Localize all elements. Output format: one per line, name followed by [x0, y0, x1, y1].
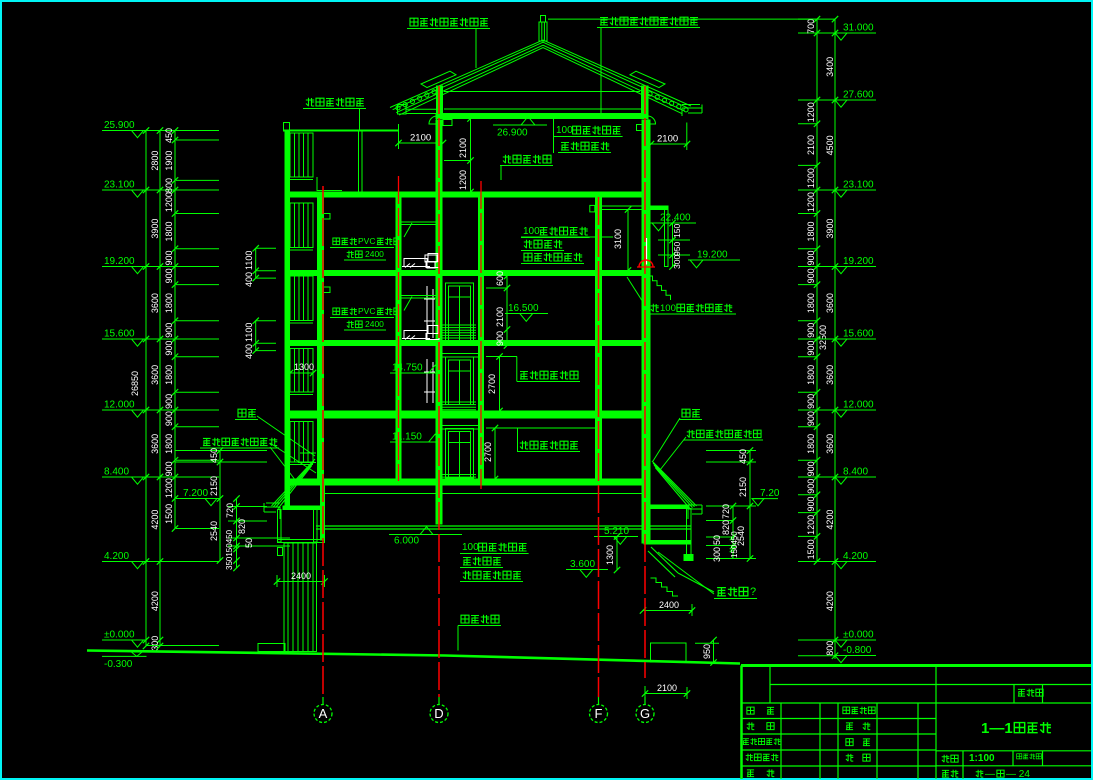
svg-text:100: 100 [556, 125, 573, 136]
svg-text:2150: 2150 [738, 477, 748, 497]
svg-text:900: 900 [806, 461, 816, 476]
svg-text:900: 900 [164, 394, 174, 409]
svg-text:1500: 1500 [164, 504, 174, 524]
svg-text:D: D [434, 706, 443, 721]
svg-text:4200: 4200 [825, 510, 835, 530]
svg-text:3.600: 3.600 [570, 559, 595, 570]
svg-text:±0.000: ±0.000 [843, 630, 874, 641]
svg-text:900: 900 [806, 411, 816, 426]
svg-text:1800: 1800 [164, 222, 174, 242]
svg-text:800: 800 [825, 641, 835, 656]
svg-text:7.200: 7.200 [183, 488, 208, 499]
svg-text:16.500: 16.500 [508, 303, 539, 314]
svg-text:2100: 2100 [657, 683, 677, 693]
svg-text:12.000: 12.000 [843, 400, 874, 411]
svg-text:3900: 3900 [825, 219, 835, 239]
svg-text:1200: 1200 [164, 478, 174, 498]
svg-text:3600: 3600 [150, 365, 160, 385]
svg-text:2700: 2700 [483, 442, 493, 462]
svg-text:1800: 1800 [164, 365, 174, 385]
svg-text:1200: 1200 [806, 102, 816, 122]
svg-text:-0.300: -0.300 [104, 659, 133, 670]
svg-text:31.000: 31.000 [843, 23, 874, 34]
svg-text:720: 720 [225, 503, 235, 518]
svg-text:1800: 1800 [806, 222, 816, 242]
svg-text:1200: 1200 [164, 192, 174, 212]
svg-text:900: 900 [806, 394, 816, 409]
svg-text:1800: 1800 [806, 434, 816, 454]
svg-text:900: 900 [495, 331, 505, 346]
svg-text:450: 450 [164, 128, 174, 143]
svg-text:900: 900 [164, 461, 174, 476]
svg-text:7.20: 7.20 [760, 488, 780, 499]
svg-text:1900: 1900 [164, 151, 174, 171]
svg-text:8.400: 8.400 [104, 467, 129, 478]
svg-text:27.600: 27.600 [843, 90, 874, 101]
svg-text:50: 50 [244, 538, 254, 548]
svg-text:PVC: PVC [358, 236, 375, 246]
svg-text:26850: 26850 [130, 371, 140, 396]
svg-text:23.100: 23.100 [843, 180, 874, 191]
svg-text:— 24: — 24 [1006, 769, 1030, 780]
svg-text:3900: 3900 [150, 219, 160, 239]
svg-text:300: 300 [712, 547, 722, 562]
svg-text:3600: 3600 [825, 434, 835, 454]
svg-text:?: ? [750, 586, 756, 598]
svg-text:1100: 1100 [244, 323, 254, 342]
svg-text:4200: 4200 [150, 510, 160, 530]
svg-text:720: 720 [721, 504, 731, 519]
svg-text:1200: 1200 [458, 170, 468, 190]
svg-text:300: 300 [150, 636, 160, 651]
svg-text:1500: 1500 [806, 539, 816, 559]
svg-text:1300: 1300 [605, 545, 615, 565]
svg-text:50: 50 [712, 535, 722, 545]
svg-text:±0.000: ±0.000 [104, 630, 135, 641]
svg-text:4200: 4200 [150, 591, 160, 611]
svg-text:1300: 1300 [294, 362, 314, 372]
svg-text:G: G [640, 706, 650, 721]
svg-text:300: 300 [672, 255, 682, 269]
svg-text:100: 100 [462, 542, 479, 553]
svg-text:15.600: 15.600 [104, 329, 135, 340]
svg-text:4500: 4500 [825, 135, 835, 155]
svg-text:100: 100 [523, 226, 540, 237]
svg-text:2100: 2100 [806, 135, 816, 155]
svg-text:400: 400 [244, 272, 254, 287]
svg-text:900: 900 [806, 268, 816, 283]
svg-text:2400: 2400 [659, 600, 679, 610]
svg-text:900: 900 [806, 323, 816, 338]
svg-text:3400: 3400 [825, 57, 835, 77]
svg-text:900: 900 [806, 341, 816, 356]
svg-text:2150: 2150 [209, 476, 219, 496]
svg-text:8.400: 8.400 [843, 467, 868, 478]
svg-text:950: 950 [672, 242, 682, 256]
svg-text:4200: 4200 [825, 591, 835, 611]
svg-text:150450: 150450 [730, 531, 739, 558]
svg-text:100: 100 [660, 303, 676, 314]
svg-text:400: 400 [244, 344, 254, 359]
svg-text:PVC: PVC [358, 306, 375, 316]
svg-text:1800: 1800 [806, 365, 816, 385]
svg-text:700: 700 [806, 19, 816, 34]
svg-text:11.150: 11.150 [392, 432, 422, 443]
svg-text:6.000: 6.000 [394, 536, 419, 547]
svg-text:3100: 3100 [613, 229, 623, 249]
svg-text:2400: 2400 [291, 571, 311, 581]
svg-text:F: F [595, 706, 603, 721]
svg-text:900: 900 [806, 250, 816, 265]
svg-text:900: 900 [164, 323, 174, 338]
svg-text:1200: 1200 [806, 168, 816, 188]
svg-text:2400: 2400 [365, 319, 384, 329]
svg-text:1—1: 1—1 [981, 720, 1013, 737]
svg-text:2540: 2540 [209, 521, 219, 541]
svg-text:22.400: 22.400 [660, 213, 691, 224]
svg-text:26.900: 26.900 [497, 128, 528, 139]
svg-text:1:100: 1:100 [969, 753, 995, 764]
svg-text:25.900: 25.900 [104, 120, 135, 131]
svg-text:450: 450 [209, 448, 219, 463]
svg-text:900: 900 [164, 411, 174, 426]
svg-text:23.100: 23.100 [104, 180, 135, 191]
svg-text:1800: 1800 [164, 293, 174, 313]
svg-text:820: 820 [237, 519, 247, 534]
svg-text:—: — [985, 769, 995, 780]
svg-text:350150450: 350150450 [225, 529, 234, 570]
svg-text:1800: 1800 [164, 434, 174, 454]
svg-text:800: 800 [164, 178, 174, 193]
svg-text:450: 450 [738, 449, 748, 464]
svg-text:32500: 32500 [818, 325, 828, 350]
svg-text:3600: 3600 [825, 293, 835, 313]
svg-text:900: 900 [164, 250, 174, 265]
svg-text:1200: 1200 [806, 515, 816, 535]
svg-text:1100: 1100 [244, 251, 254, 270]
svg-text:3600: 3600 [150, 434, 160, 454]
svg-text:A: A [319, 706, 328, 721]
svg-text:19.200: 19.200 [104, 256, 135, 267]
svg-text:900: 900 [164, 268, 174, 283]
svg-text:4.200: 4.200 [104, 551, 129, 562]
svg-text:15.600: 15.600 [843, 329, 874, 340]
svg-text:900: 900 [164, 341, 174, 356]
svg-text:2100: 2100 [410, 133, 431, 144]
svg-text:1800: 1800 [806, 293, 816, 313]
svg-text:2100: 2100 [458, 138, 468, 158]
svg-text:2100: 2100 [495, 307, 505, 327]
svg-text:950: 950 [702, 644, 712, 659]
svg-text:900: 900 [806, 479, 816, 494]
svg-text:19.200: 19.200 [697, 250, 728, 261]
svg-text:3600: 3600 [150, 293, 160, 313]
svg-text:14.750: 14.750 [392, 363, 423, 374]
svg-text:900: 900 [806, 496, 816, 511]
svg-text:2800: 2800 [150, 151, 160, 171]
svg-text:19.200: 19.200 [843, 256, 874, 267]
svg-text:1200: 1200 [806, 192, 816, 212]
svg-text:150: 150 [672, 224, 682, 238]
svg-text:12.000: 12.000 [104, 400, 135, 411]
svg-text:2400: 2400 [365, 249, 384, 259]
svg-text:4.200: 4.200 [843, 551, 868, 562]
svg-text:600: 600 [495, 271, 505, 286]
svg-text:-0.800: -0.800 [843, 645, 872, 656]
svg-text:3600: 3600 [825, 365, 835, 385]
svg-text:5.210: 5.210 [604, 526, 629, 537]
svg-text:2100: 2100 [657, 134, 678, 145]
svg-text:2700: 2700 [487, 374, 497, 394]
